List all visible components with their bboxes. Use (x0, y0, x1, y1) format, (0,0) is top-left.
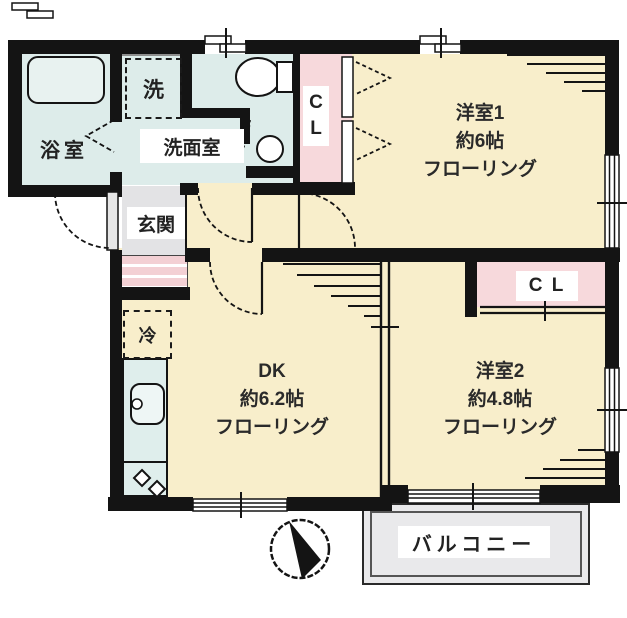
dk-area: 約6.2帖 (182, 386, 362, 414)
fridge-label: 冷 (139, 322, 157, 348)
entrance-label: 玄関 (127, 207, 185, 239)
western1-name: 洋室1 (390, 100, 570, 128)
wall (8, 40, 205, 54)
western1-flooring: フローリング (390, 156, 570, 184)
wall (8, 185, 122, 197)
wall (293, 182, 355, 195)
wall (605, 40, 619, 155)
wall (465, 248, 477, 317)
entrance-frame-line (185, 190, 187, 255)
wall (287, 497, 392, 511)
bath-label: 浴室 (28, 134, 100, 163)
kitchen-counter (122, 358, 168, 497)
closet1-label-c: C (309, 90, 323, 116)
wall (180, 183, 198, 195)
closet1-label: C L (303, 86, 329, 146)
wall (110, 54, 122, 122)
wall (108, 497, 193, 511)
wall (8, 40, 22, 197)
dk-text: DK 約6.2帖 フローリング (182, 358, 362, 442)
wall (460, 40, 619, 54)
western2-area: 約4.8帖 (410, 386, 590, 414)
washroom-label-text: 洗面室 (163, 133, 220, 160)
western1-text: 洋室1 約6帖 フローリング (390, 100, 570, 184)
western2-flooring: フローリング (410, 414, 590, 442)
western2-name: 洋室2 (410, 358, 590, 386)
balcony-label: バルコニー (398, 526, 550, 558)
dk-flooring: フローリング (182, 414, 362, 442)
fridge-space: 冷 (123, 310, 172, 359)
wall (110, 183, 122, 193)
wall (605, 248, 619, 368)
floorplan: 洗 冷 浴室 洗面室 玄関 C L C L 洋室1 約6帖 フローリング DK … (0, 0, 627, 618)
entrance-label-text: 玄関 (137, 210, 175, 237)
wall (246, 166, 296, 178)
front-door-leaf (107, 192, 118, 250)
closet2-label-text: C L (529, 275, 566, 297)
wall (380, 485, 408, 503)
wall (540, 485, 620, 503)
western1-area: 約6帖 (390, 128, 570, 156)
wall (185, 248, 210, 262)
closet1-label-l: L (310, 116, 322, 142)
wall (293, 54, 300, 194)
washroom-label: 洗面室 (140, 129, 244, 163)
closet2-label: C L (516, 271, 578, 301)
dk-name: DK (182, 358, 362, 386)
western2-text: 洋室2 約4.8帖 フローリング (410, 358, 590, 442)
north-compass-icon (271, 520, 329, 579)
balcony-label-text: バルコニー (412, 528, 537, 557)
entrance-steps (120, 255, 188, 290)
front-door-arc (55, 193, 110, 248)
wall (262, 248, 620, 262)
wall (245, 40, 420, 54)
wall (110, 287, 190, 300)
washer-space: 洗 (125, 58, 182, 119)
washer-label: 洗 (143, 74, 164, 104)
